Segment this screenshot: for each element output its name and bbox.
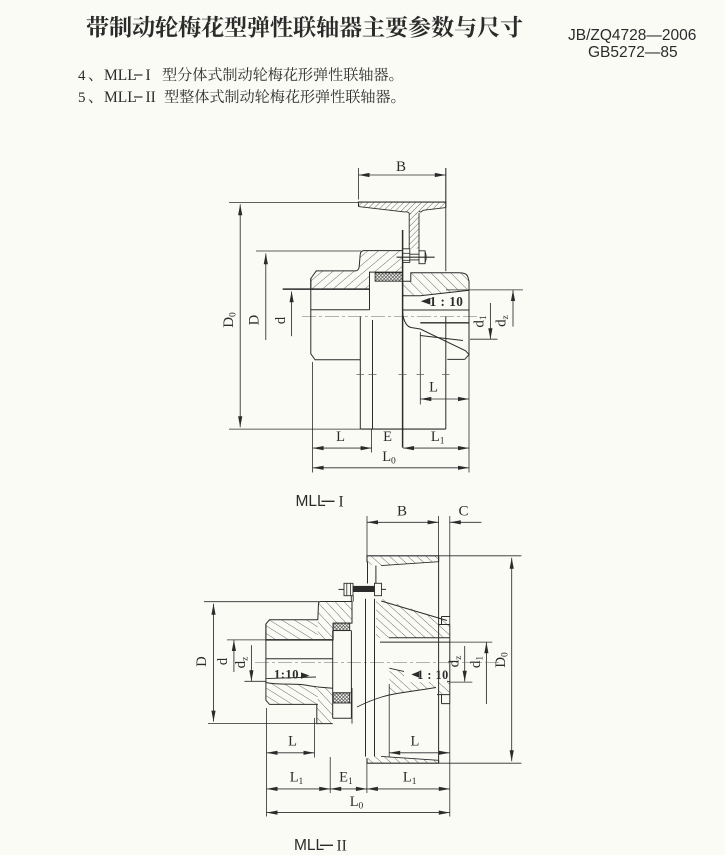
svg-text:C: C	[458, 504, 468, 520]
svg-text:B: B	[396, 159, 406, 175]
svg-text:MLL: MLL	[104, 89, 137, 106]
svg-text:5: 5	[78, 90, 86, 106]
svg-text:L: L	[429, 380, 438, 396]
svg-text:1 : 10: 1 : 10	[417, 668, 448, 682]
svg-text:D: D	[194, 656, 210, 666]
svg-text:MLL: MLL	[104, 67, 137, 84]
svg-text:I: I	[339, 494, 344, 511]
svg-text:MLL: MLL	[294, 837, 325, 854]
svg-text:d: d	[215, 657, 231, 665]
svg-text:MLL: MLL	[296, 493, 327, 510]
svg-text:GB5272—85: GB5272—85	[588, 44, 678, 61]
svg-text:II: II	[146, 89, 156, 106]
svg-text:1 : 10: 1 : 10	[430, 294, 464, 309]
svg-text:L: L	[288, 734, 297, 750]
svg-text:B: B	[397, 504, 407, 520]
svg-text:d: d	[273, 316, 289, 324]
svg-text:D: D	[247, 315, 263, 325]
svg-text:JB/ZQ4728—2006: JB/ZQ4728—2006	[568, 27, 696, 44]
svg-text:II: II	[337, 838, 347, 855]
svg-text:I: I	[146, 67, 151, 84]
svg-text:1:10: 1:10	[274, 667, 299, 681]
svg-text:E: E	[383, 429, 392, 445]
svg-text:L: L	[410, 734, 419, 750]
svg-text:L: L	[336, 429, 345, 445]
svg-text:4: 4	[78, 68, 86, 84]
